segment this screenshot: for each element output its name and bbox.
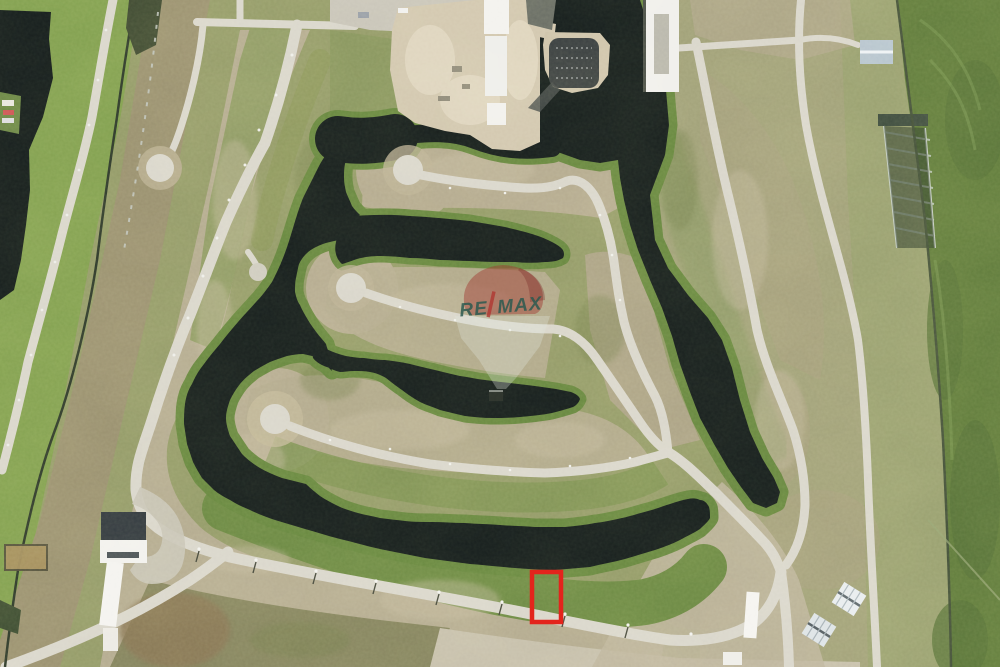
svg-text:RE: RE bbox=[459, 298, 489, 321]
svg-text:MAX: MAX bbox=[496, 293, 543, 318]
